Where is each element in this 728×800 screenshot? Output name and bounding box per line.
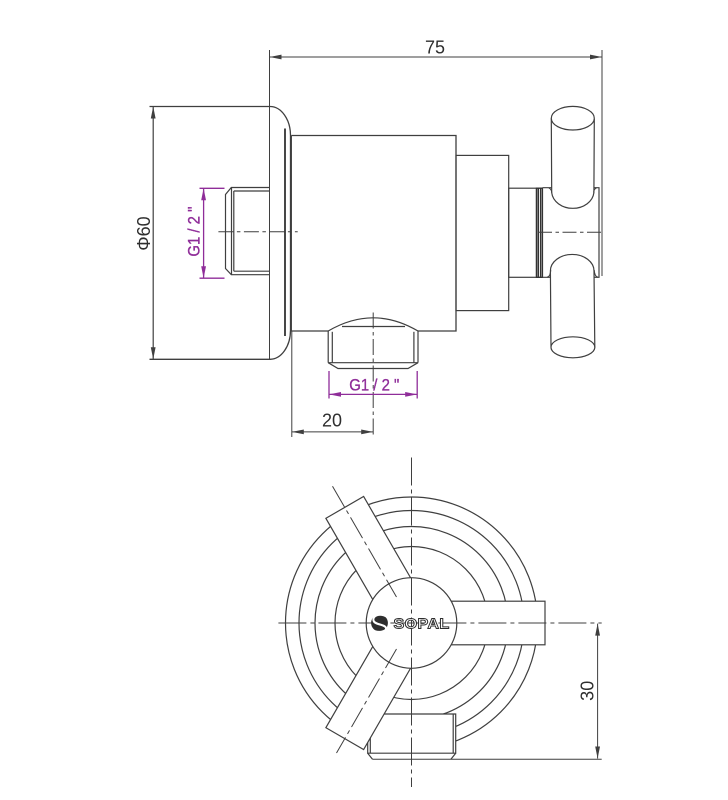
svg-text:30: 30 (578, 681, 598, 701)
svg-text:SOPAL: SOPAL (394, 615, 450, 632)
svg-text:75: 75 (425, 38, 445, 58)
svg-text:G1 / 2 ": G1 / 2 " (184, 207, 203, 257)
svg-text:20: 20 (322, 411, 342, 431)
svg-text:Φ60: Φ60 (134, 216, 154, 250)
svg-text:G1 / 2 ": G1 / 2 " (349, 376, 399, 395)
